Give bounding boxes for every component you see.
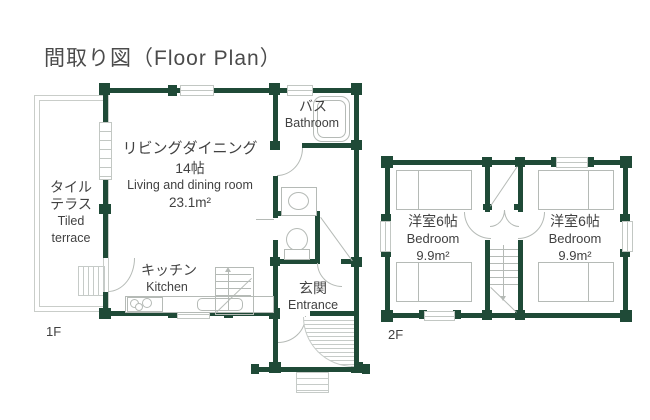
kitchen-label-jp: キッチン [141,263,197,277]
toilet-door-leaf [256,219,274,220]
door-arc-washroom [277,148,303,176]
door-arc-bedroom-left [464,212,491,239]
bedroom-left-label-jp: 洋室6帖 [408,214,458,228]
burner-icon [142,298,152,308]
door-arc-bedroom-right [518,212,545,239]
bedroom-left-label-en: Bedroom [407,232,460,245]
window-icon [380,221,391,252]
wall-post [381,156,393,168]
bed-pillow-line [588,263,589,301]
wall-post [351,257,362,267]
window-icon [556,157,588,168]
living-label-area: 23.1m² [169,196,211,210]
window-icon [287,85,313,96]
closet-diagonal [490,166,518,206]
stair-treads [490,243,518,285]
door-arc-terrace [108,258,135,292]
living-label-jp: リビングダイニング [122,141,257,156]
toilet-base-icon [284,249,310,260]
1f-top-wall [103,88,359,93]
window-icon [180,85,214,96]
stair-arrow-line [228,272,229,310]
exterior-steps-icon [296,372,329,393]
1f-toilet-divider-wall [315,216,320,264]
stair-arrow-head [225,267,231,272]
2f-hall-right-wall-b [518,240,523,313]
closet-diagonal [320,217,353,261]
door-arc-front-door [278,316,306,343]
wall-post [269,362,281,373]
living-label-en: Living and dining room [127,179,253,192]
wall-post [269,83,280,95]
1f-right-wall [354,88,359,372]
1f-inner-wall-a [273,88,278,148]
bed-icon [396,170,472,210]
wall-post [351,140,362,150]
bed-pillow-line [418,171,419,209]
bedroom-left-label-area: 9.9m² [416,249,449,262]
terrace-label-jp1: タイル [50,180,92,194]
floor-plan-canvas: 間取り図（Floor Plan） タイル テラス Tiled terrace [0,0,650,420]
entrance-label-jp: 玄関 [299,281,327,295]
wall-post [251,364,259,374]
terrace-label-en1: Tiled [58,215,85,228]
wall-post [482,157,492,167]
bed-icon [396,262,472,302]
stair-arrow-head [500,296,506,301]
wall-post [351,83,362,95]
floor-label-1f: 1F [46,324,61,339]
wall-post [620,156,632,168]
window-icon [424,311,455,321]
stair-arrow-line [503,245,504,297]
double-door-arc-left [490,210,505,227]
kitchen-label-en: Kitchen [146,281,188,294]
double-door-arc-right [504,210,519,227]
bed-icon [538,262,614,302]
bedroom-right-label-en: Bedroom [549,232,602,245]
page-title: 間取り図（Floor Plan） [44,42,282,72]
wall-post [99,308,111,319]
1f-left-wall-b [103,178,108,258]
bed-pillow-line [418,263,419,301]
floor-label-2f: 2F [388,327,403,342]
window-icon [622,221,633,252]
wall-post [99,83,110,95]
washstand-bowl-icon [288,192,309,210]
living-label-size: 14帖 [175,161,205,175]
terrace-label-en2: terrace [52,232,91,245]
entrance-fan-steps-icon [303,317,354,367]
bath-label-en: Bathroom [285,117,339,130]
toilet-icon [286,228,308,251]
bed-icon [538,170,614,210]
bedroom-right-label-area: 9.9m² [558,249,591,262]
wall-post [270,257,280,266]
bed-pillow-line [588,171,589,209]
window-icon [99,122,112,180]
wall-post [620,310,632,322]
entrance-label-en: Entrance [288,299,338,312]
burner-icon [135,303,143,311]
bath-label-jp: バス [299,99,327,113]
wall-post [362,364,370,374]
terrace-steps-icon [78,266,105,296]
wall-post [381,310,393,322]
terrace-label-jp2: テラス [50,197,92,211]
wall-post [168,85,177,96]
wall-post [99,204,111,214]
bedroom-right-label-jp: 洋室6帖 [550,214,600,228]
wall-post [482,310,492,320]
